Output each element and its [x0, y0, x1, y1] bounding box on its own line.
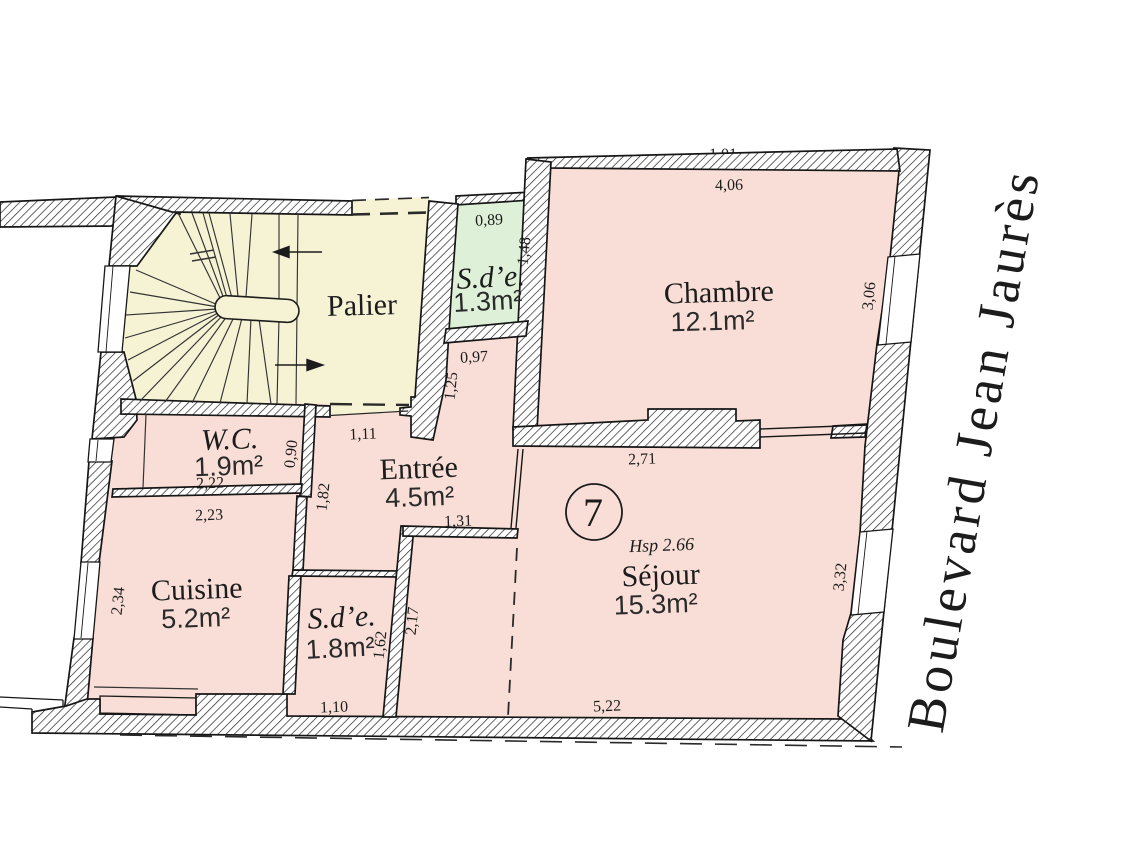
svg-text:1,82: 1,82 — [314, 482, 334, 512]
svg-text:12.1m²: 12.1m² — [670, 305, 755, 337]
svg-text:Hsp 2.66: Hsp 2.66 — [628, 534, 695, 556]
svg-text:1,11: 1,11 — [349, 426, 377, 444]
svg-text:7: 7 — [583, 490, 603, 535]
svg-text:Palier: Palier — [327, 288, 398, 323]
svg-text:2,22: 2,22 — [196, 475, 225, 493]
svg-text:2,71: 2,71 — [628, 451, 657, 469]
svg-text:5,22: 5,22 — [593, 698, 622, 716]
svg-text:1,62: 1,62 — [371, 630, 391, 660]
svg-text:3,32: 3,32 — [831, 562, 851, 592]
svg-text:1,48: 1,48 — [515, 236, 535, 266]
svg-text:1,25: 1,25 — [442, 371, 462, 401]
svg-text:1.8m²: 1.8m² — [305, 631, 376, 665]
svg-text:2,23: 2,23 — [195, 507, 224, 525]
svg-text:3,06: 3,06 — [860, 281, 880, 311]
svg-text:2,17: 2,17 — [403, 606, 423, 636]
svg-text:0,89: 0,89 — [475, 211, 504, 229]
svg-text:1.3m²: 1.3m² — [453, 284, 524, 318]
svg-text:15.3m²: 15.3m² — [613, 588, 698, 621]
svg-text:1,31: 1,31 — [444, 513, 473, 531]
svg-text:4,06: 4,06 — [715, 177, 743, 194]
svg-text:0,97: 0,97 — [460, 348, 489, 366]
svg-text:1,10: 1,10 — [320, 699, 349, 717]
svg-text:S.d’e.: S.d’e. — [307, 599, 377, 636]
svg-text:5.2m²: 5.2m² — [161, 602, 231, 634]
svg-text:4.5m²: 4.5m² — [385, 481, 455, 513]
svg-text:2,34: 2,34 — [109, 586, 129, 616]
svg-text:0,90: 0,90 — [282, 439, 302, 469]
